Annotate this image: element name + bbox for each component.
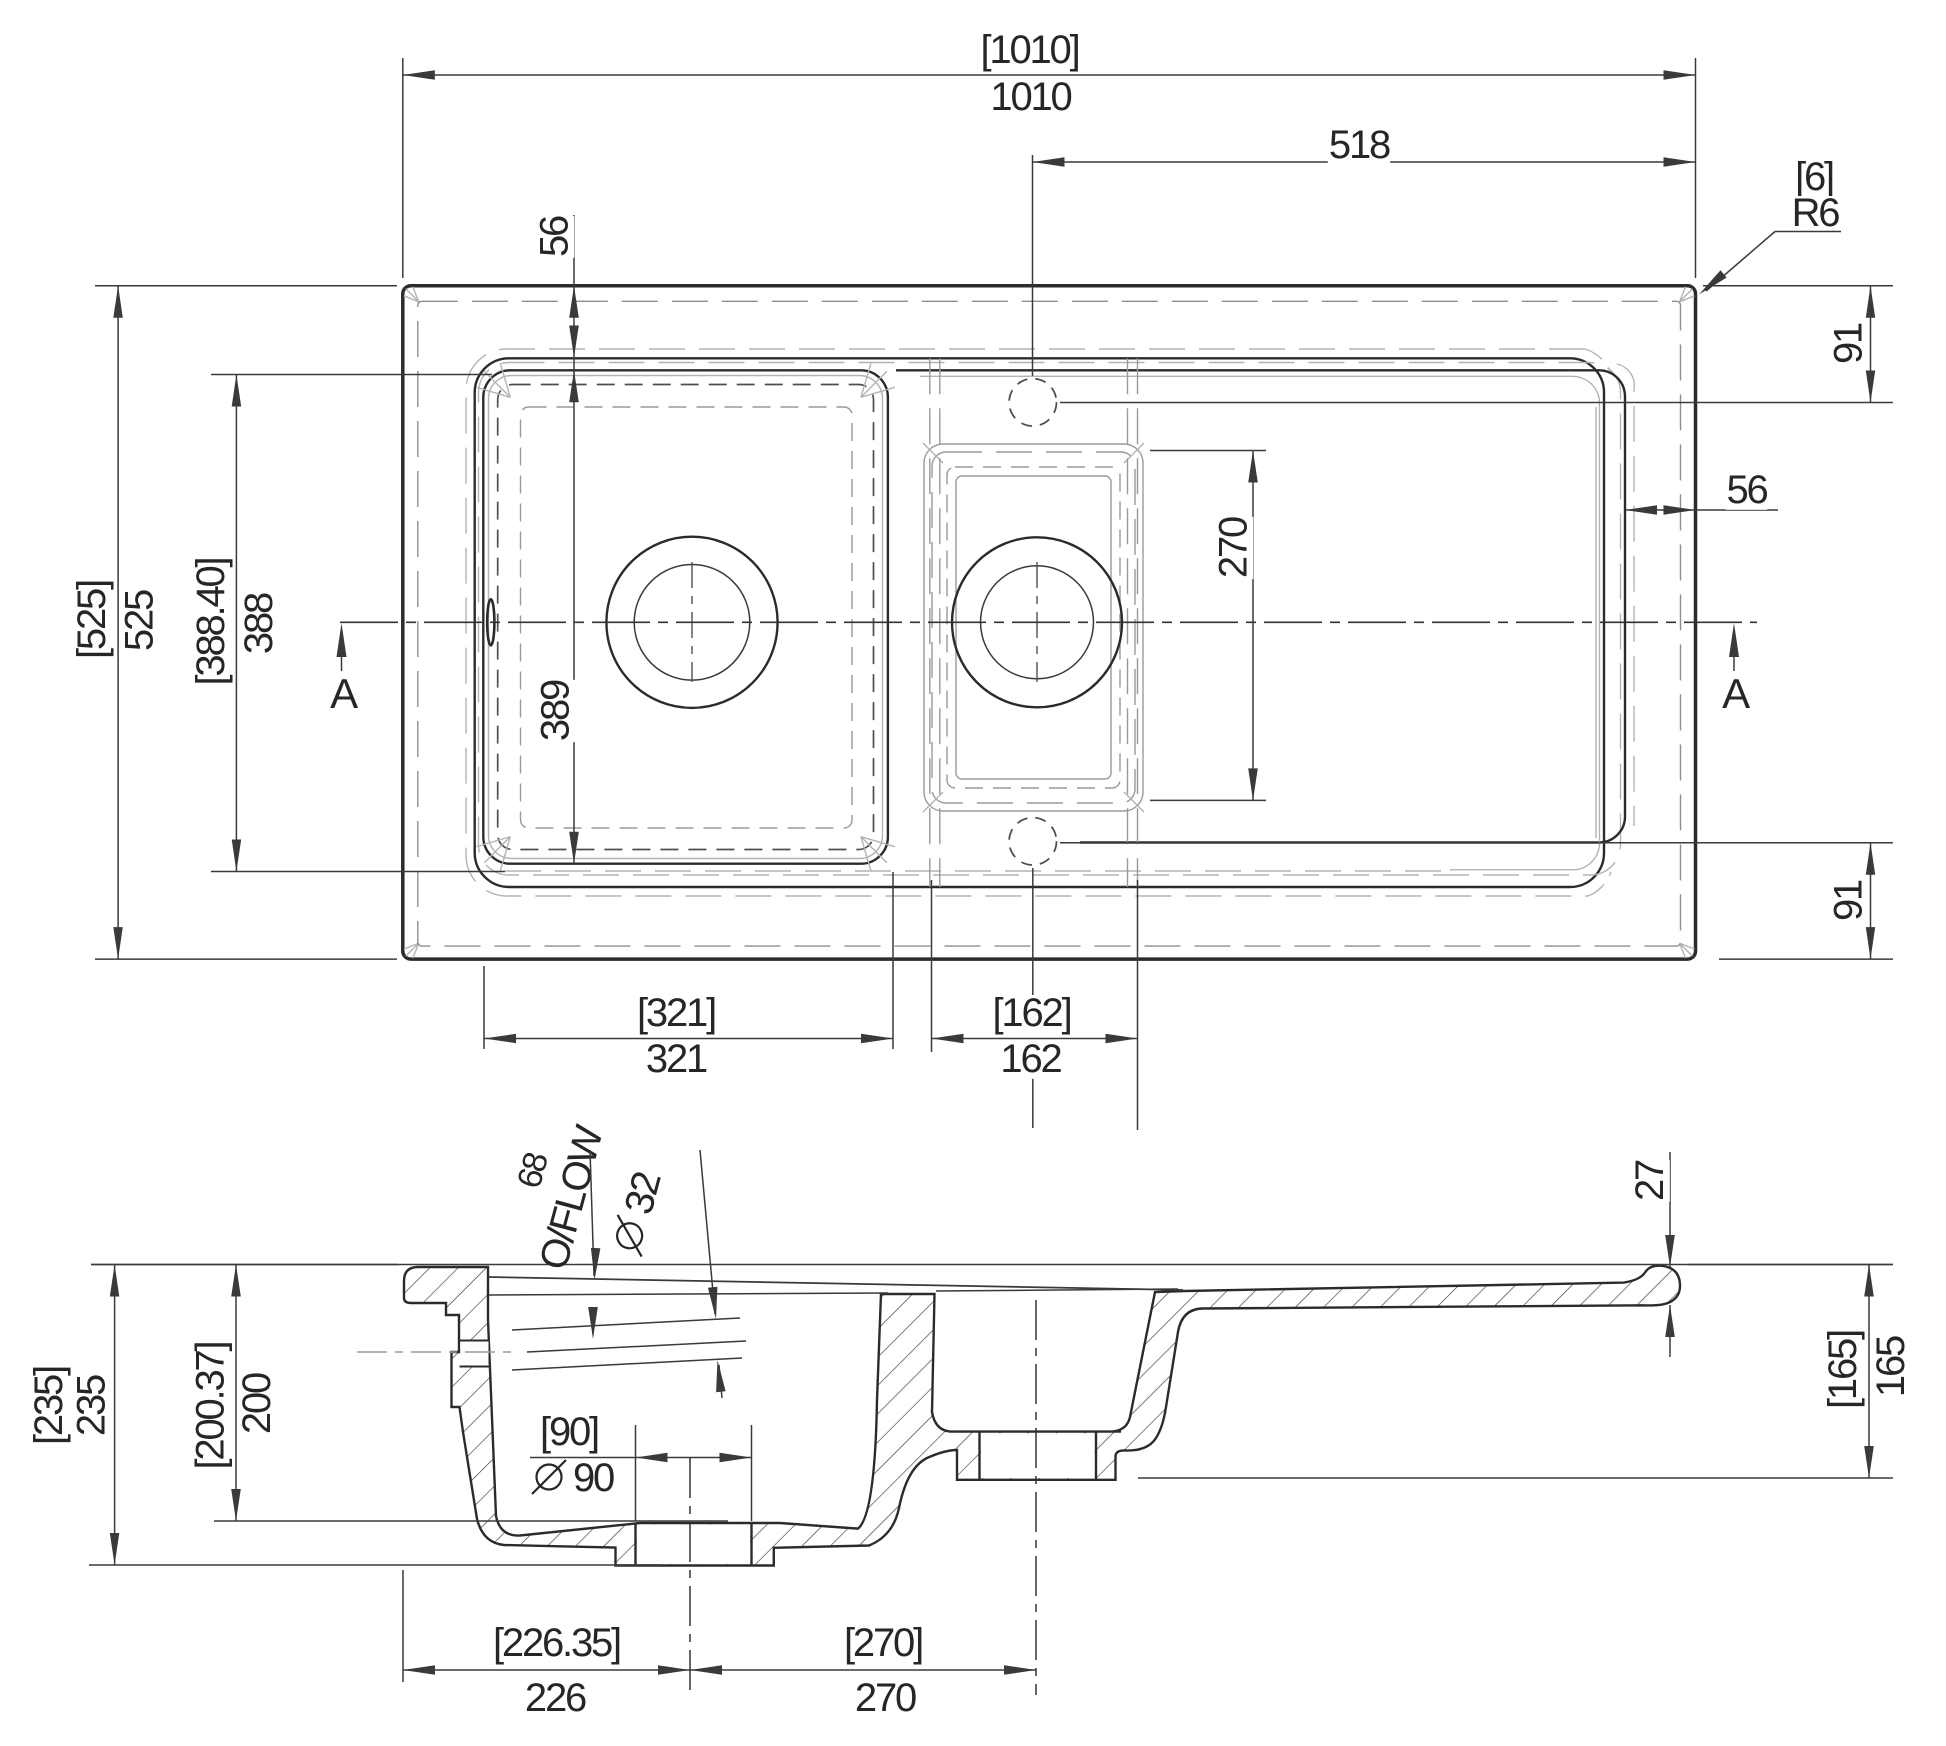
svg-text:518: 518	[1329, 123, 1390, 167]
svg-text:R6: R6	[1792, 191, 1840, 235]
svg-text:[200.37]: [200.37]	[189, 1342, 233, 1469]
svg-text:[226.35]: [226.35]	[493, 1621, 620, 1665]
svg-text:165: 165	[1869, 1336, 1913, 1397]
svg-text:1010: 1010	[990, 75, 1071, 119]
svg-text:[165]: [165]	[1821, 1331, 1865, 1409]
svg-text:[235]: [235]	[27, 1367, 71, 1445]
svg-text:226: 226	[525, 1676, 586, 1720]
svg-text:91: 91	[1827, 323, 1871, 364]
svg-text:235: 235	[70, 1375, 114, 1436]
svg-text:56: 56	[1726, 468, 1767, 512]
svg-text:389: 389	[534, 680, 578, 741]
svg-text:388: 388	[237, 593, 281, 654]
svg-text:[270]: [270]	[844, 1621, 922, 1665]
svg-text:91: 91	[1827, 880, 1871, 921]
svg-text:56: 56	[533, 216, 577, 257]
svg-text:[90]: [90]	[540, 1410, 598, 1454]
svg-text:90: 90	[573, 1456, 614, 1500]
svg-text:162: 162	[1000, 1037, 1061, 1081]
svg-text:A: A	[330, 670, 358, 717]
svg-text:321: 321	[646, 1037, 707, 1081]
svg-text:[162]: [162]	[993, 991, 1071, 1035]
svg-text:27: 27	[1628, 1160, 1672, 1201]
svg-text:[321]: [321]	[637, 991, 715, 1035]
svg-text:[525]: [525]	[70, 581, 114, 659]
svg-text:[1010]: [1010]	[980, 28, 1078, 72]
svg-text:A: A	[1722, 670, 1750, 717]
svg-text:[388.40]: [388.40]	[189, 558, 233, 685]
svg-text:270: 270	[1212, 517, 1256, 578]
svg-text:270: 270	[855, 1676, 916, 1720]
svg-text:525: 525	[118, 590, 162, 651]
svg-text:200: 200	[235, 1373, 279, 1434]
